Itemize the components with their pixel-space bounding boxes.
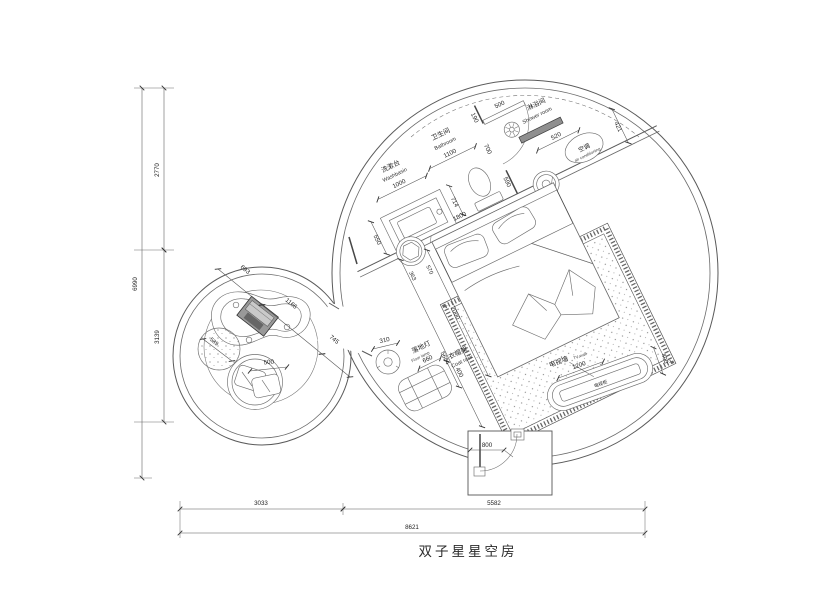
cup-icon — [233, 302, 239, 308]
door-stop-block — [474, 467, 485, 476]
dim-plan-top: 2770 — [154, 163, 161, 177]
dim-bottom-left: 3033 — [254, 500, 268, 507]
door-hinge-block — [511, 429, 524, 440]
dim-bottom-total: 8621 — [405, 524, 419, 531]
dim-toilet-side: 590 — [501, 176, 512, 189]
floor-plan-drawing: 洗漱台 Washbasin 1000 550 714 卫生间 Bathroom … — [0, 0, 837, 592]
dim-ac-clear: 421 — [612, 121, 623, 134]
dim-entry-door: 800 — [482, 442, 493, 449]
entrance — [468, 429, 552, 495]
dim-lounge-a: 693 — [239, 264, 252, 276]
dim-bath-door-leaf: 500 — [494, 99, 507, 110]
dim-basin-toilet-gap: 714 — [449, 196, 460, 209]
dim-bath-door: 700 — [482, 143, 493, 156]
dim-lamp: 310 — [379, 336, 391, 345]
dim-basin-depth: 550 — [372, 234, 383, 247]
plan-title: 双子星星空房 — [419, 544, 518, 559]
passage-opening — [317, 237, 378, 356]
dim-stool-a: 363 — [407, 271, 416, 282]
dim-shower-bar: 520 — [550, 131, 563, 142]
bottom-dimensions: 3033 5582 8621 — [180, 500, 645, 538]
pouf-large — [228, 355, 283, 410]
dim-stool-b: 570 — [424, 265, 433, 276]
dim-plan-height: 6990 — [132, 277, 139, 291]
dim-bottom-right: 5582 — [487, 500, 501, 507]
dim-pouf-large: 500 — [263, 358, 275, 366]
dim-rack-depth: 400 — [454, 366, 465, 379]
dim-washbasin-width: 1000 — [392, 178, 408, 191]
wall-return — [349, 237, 357, 264]
dim-bathroom-width: 1100 — [443, 147, 459, 159]
left-dimensions: 6990 2770 3139 — [132, 88, 174, 478]
floor-plan-canvas: 洗漱台 Washbasin 1000 550 714 卫生间 Bathroom … — [0, 0, 837, 592]
shower-head-icon — [502, 119, 522, 139]
toilet — [460, 162, 503, 211]
floor-lamp — [373, 343, 400, 374]
dim-plan-mid: 3139 — [154, 330, 161, 344]
cup-icon — [246, 337, 252, 343]
pouf-small — [198, 328, 240, 370]
dim-bed-width: 1800 — [452, 210, 468, 223]
